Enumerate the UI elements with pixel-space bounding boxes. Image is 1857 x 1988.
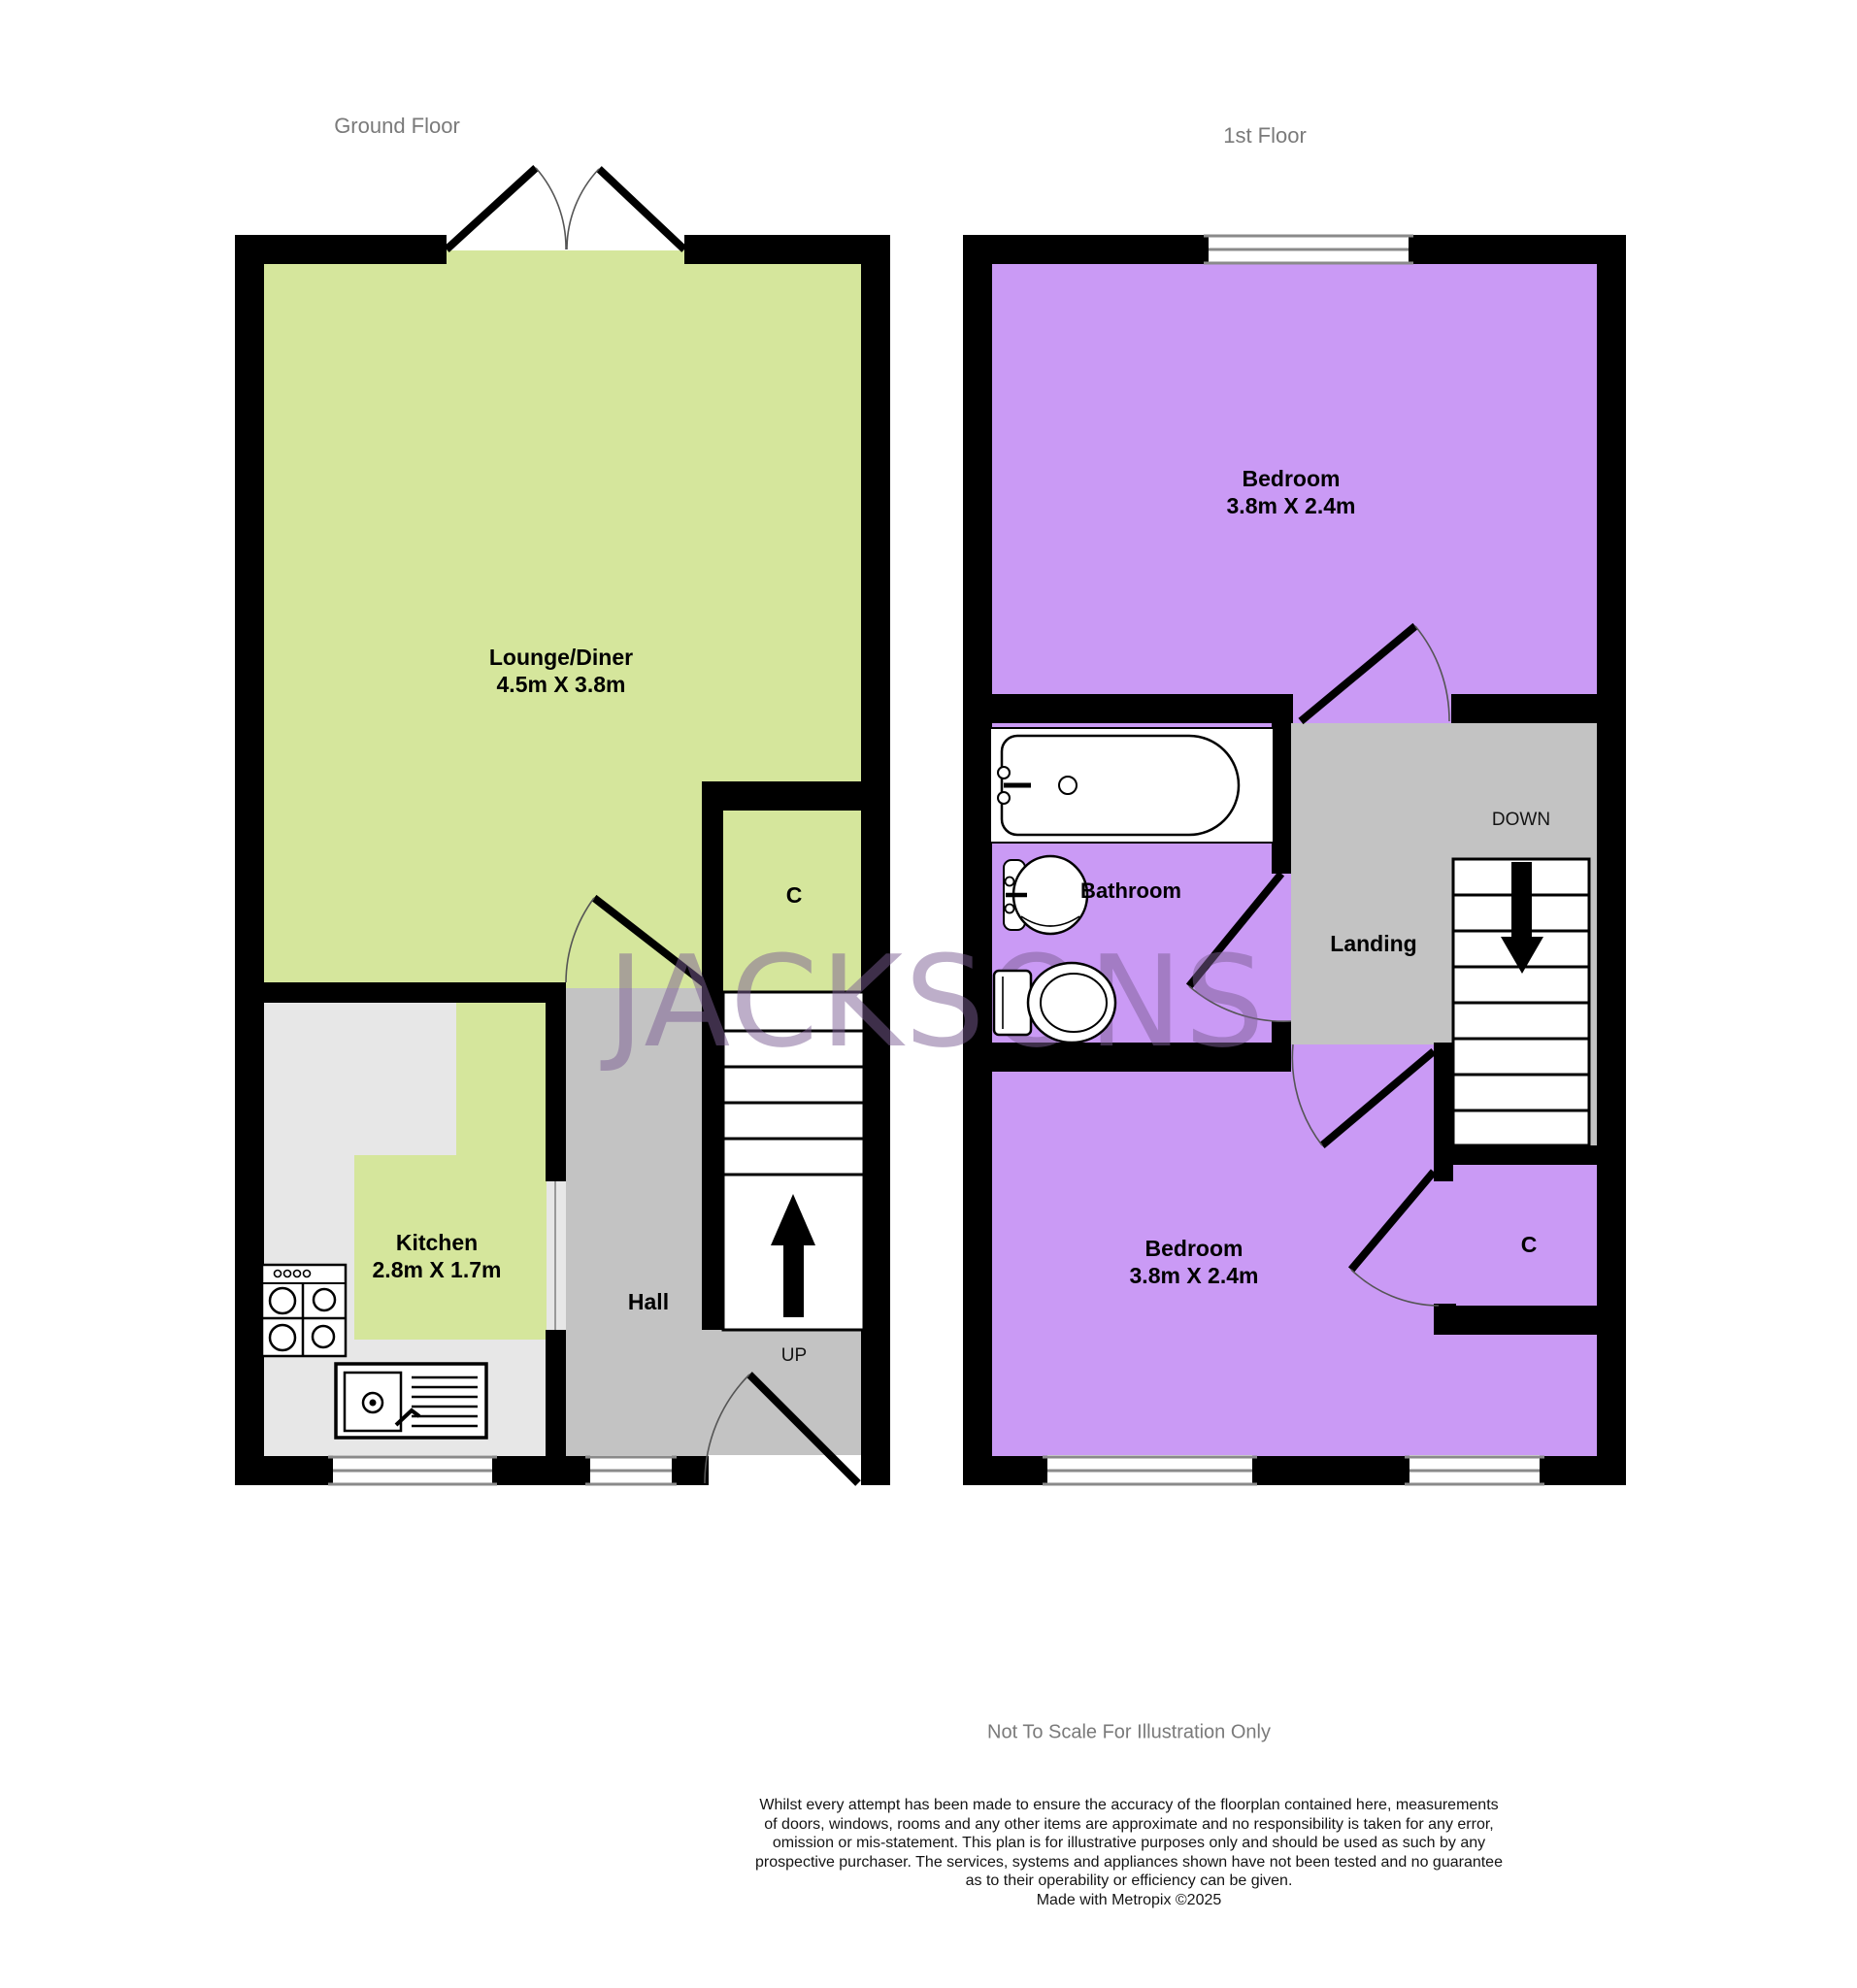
disclaimer-line: as to their operability or efficiency ca… xyxy=(755,1872,1503,1891)
lounge-name: Lounge/Diner xyxy=(489,644,633,671)
disclaimer-line: of doors, windows, rooms and any other i… xyxy=(755,1815,1503,1835)
kitchen-dims: 2.8m X 1.7m xyxy=(373,1256,502,1283)
ff-cupboard-label: C xyxy=(1521,1231,1538,1258)
bedroom-back-name: Bedroom xyxy=(1130,1235,1259,1262)
metropix-credit: Made with Metropix ©2025 xyxy=(755,1891,1503,1910)
floorplan-page: { "ground_floor": { "title": "Ground Flo… xyxy=(0,0,1857,1988)
bedroom-front-dims: 3.8m X 2.4m xyxy=(1227,492,1356,519)
bedroom-back-dims: 3.8m X 2.4m xyxy=(1130,1262,1259,1289)
bedroom-front-name: Bedroom xyxy=(1227,465,1356,492)
up-label: UP xyxy=(781,1345,807,1367)
bedroom-back-label: Bedroom 3.8m X 2.4m xyxy=(1130,1235,1259,1289)
first-floor-title: 1st Floor xyxy=(1223,123,1307,149)
ground-floor-title: Ground Floor xyxy=(334,114,460,139)
bathroom-label: Bathroom xyxy=(1080,878,1181,905)
hall-label: Hall xyxy=(628,1288,669,1315)
landing-label: Landing xyxy=(1330,930,1416,957)
labels-layer: Ground Floor 1st Floor Lounge/Diner 4.5m… xyxy=(0,0,1857,1988)
disclaimer-line: Whilst every attempt has been made to en… xyxy=(755,1796,1503,1815)
down-label: DOWN xyxy=(1492,810,1550,831)
disclaimer-block: Whilst every attempt has been made to en… xyxy=(755,1796,1503,1909)
disclaimer-line: prospective purchaser. The services, sys… xyxy=(755,1853,1503,1872)
kitchen-name: Kitchen xyxy=(373,1229,502,1256)
kitchen-label: Kitchen 2.8m X 1.7m xyxy=(373,1229,502,1283)
lounge-dims: 4.5m X 3.8m xyxy=(489,671,633,698)
disclaimer-line: omission or mis-statement. This plan is … xyxy=(755,1834,1503,1853)
scale-note: Not To Scale For Illustration Only xyxy=(987,1722,1271,1744)
gf-cupboard-label: C xyxy=(786,881,803,909)
lounge-label: Lounge/Diner 4.5m X 3.8m xyxy=(489,644,633,698)
bedroom-front-label: Bedroom 3.8m X 2.4m xyxy=(1227,465,1356,519)
